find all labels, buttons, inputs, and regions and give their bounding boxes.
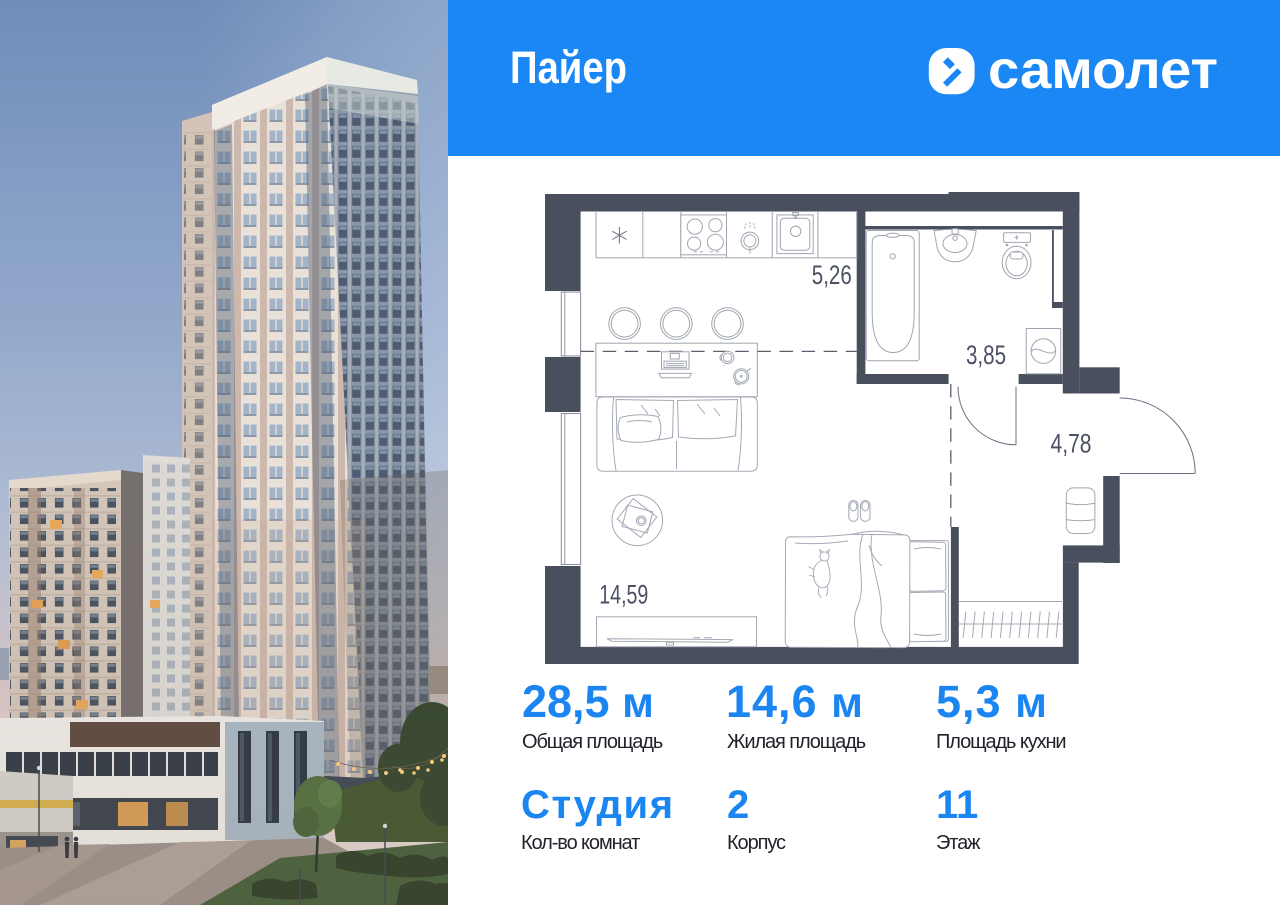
svg-text:14,59: 14,59: [599, 580, 648, 610]
svg-text:самолет: самолет: [988, 44, 1218, 100]
svg-text:3,85: 3,85: [966, 340, 1006, 370]
svg-text:4,78: 4,78: [1051, 429, 1092, 459]
svg-text:Пайер: Пайер: [510, 42, 627, 93]
svg-text:5,26: 5,26: [812, 260, 852, 290]
